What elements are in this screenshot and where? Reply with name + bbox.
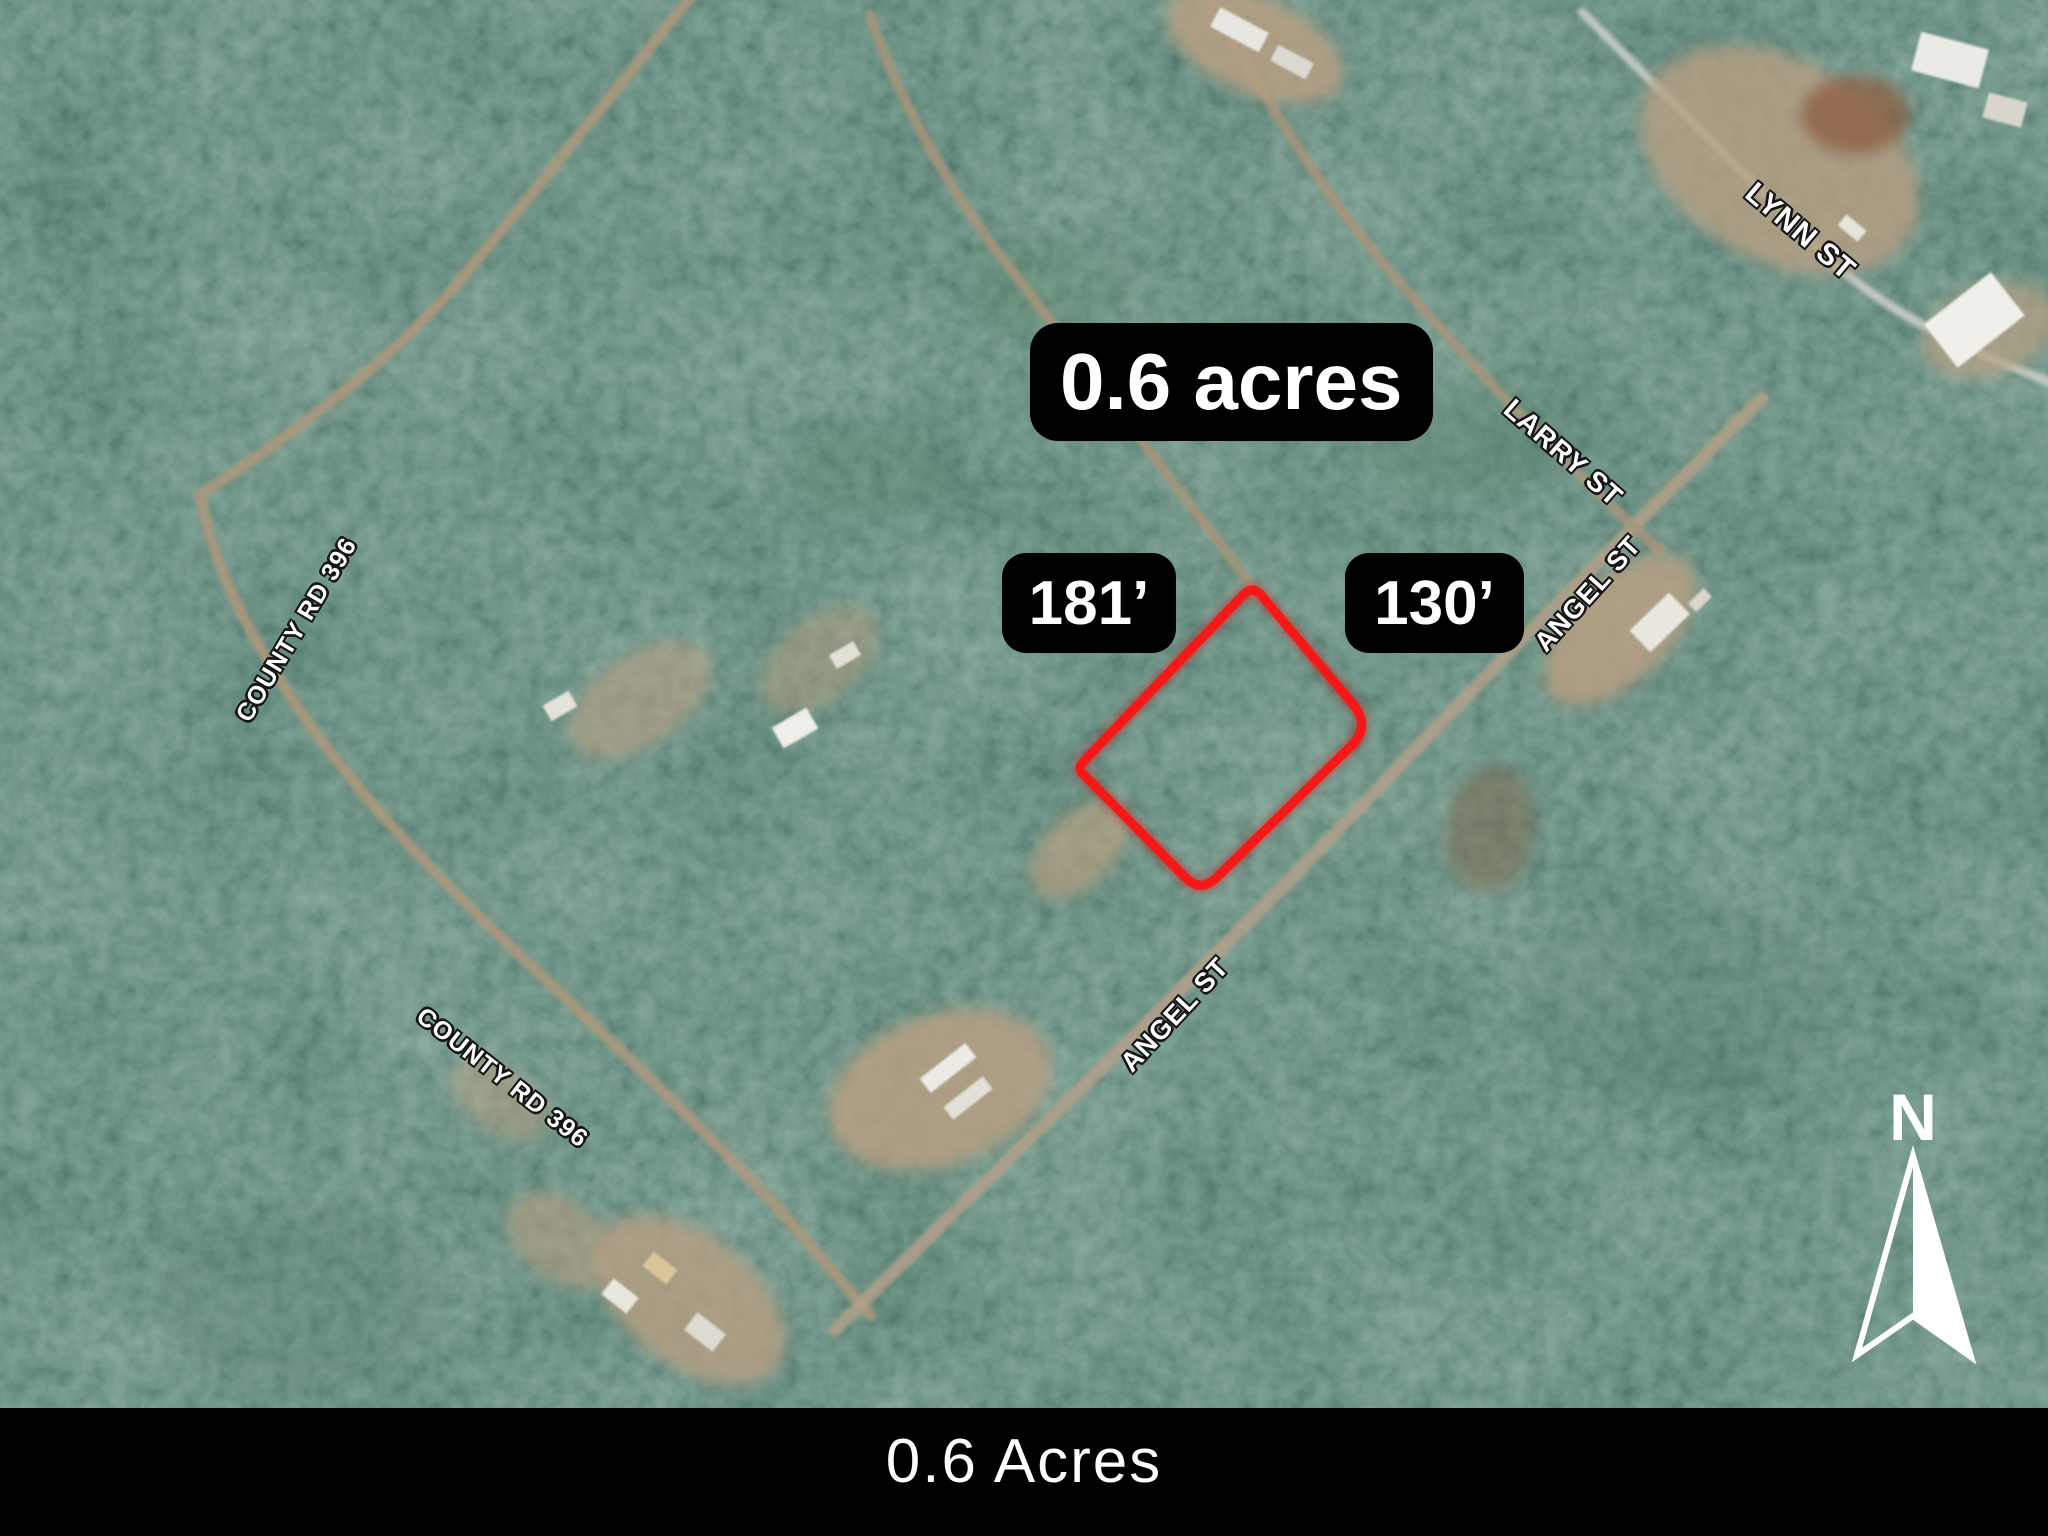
compass-n-label: N xyxy=(1889,1080,1937,1154)
land-listing-graphic: LYNN ST LARRY ST ANGEL ST ANGEL ST COUNT… xyxy=(0,0,2048,1536)
caption-text: 0.6 Acres xyxy=(886,1426,1162,1497)
north-compass: N xyxy=(1840,1078,1990,1373)
area-badge: 0.6 acres xyxy=(1030,323,1433,441)
parcel-overlay xyxy=(0,0,2048,1408)
dimension-badge-130ft: 130’ xyxy=(1345,553,1524,653)
dimension-badge-181ft: 181’ xyxy=(1002,553,1176,653)
caption-bar: 0.6 Acres xyxy=(0,1408,2048,1536)
satellite-map: LYNN ST LARRY ST ANGEL ST ANGEL ST COUNT… xyxy=(0,0,2048,1408)
